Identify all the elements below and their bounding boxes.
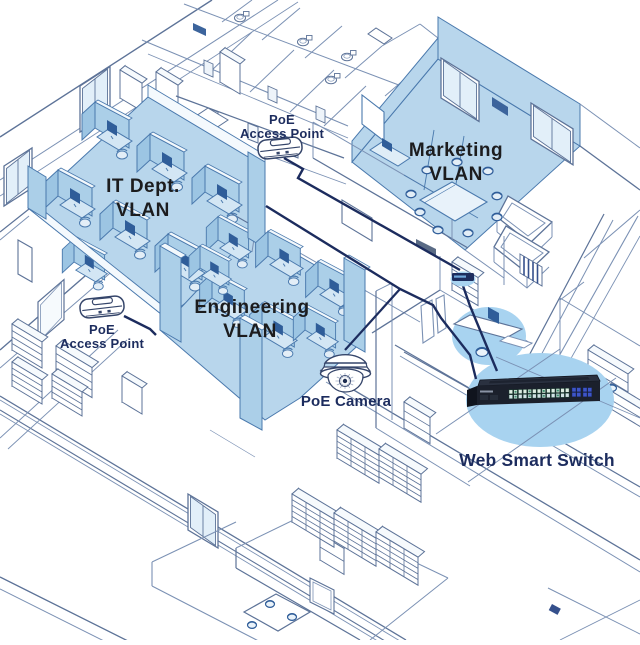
svg-text:Access Point: Access Point — [60, 336, 145, 351]
svg-text:PoE: PoE — [269, 112, 295, 127]
svg-text:VLAN: VLAN — [116, 200, 170, 221]
svg-text:IT Dept.: IT Dept. — [106, 176, 180, 197]
svg-text:VLAN: VLAN — [223, 321, 277, 342]
svg-text:Web Smart Switch: Web Smart Switch — [459, 450, 615, 470]
svg-text:PoE: PoE — [89, 322, 115, 337]
svg-text:Marketing: Marketing — [409, 140, 503, 161]
svg-text:PoE Camera: PoE Camera — [301, 393, 392, 410]
svg-text:Engineering: Engineering — [194, 297, 309, 318]
svg-text:VLAN: VLAN — [429, 164, 483, 185]
svg-text:Access Point: Access Point — [240, 126, 325, 141]
